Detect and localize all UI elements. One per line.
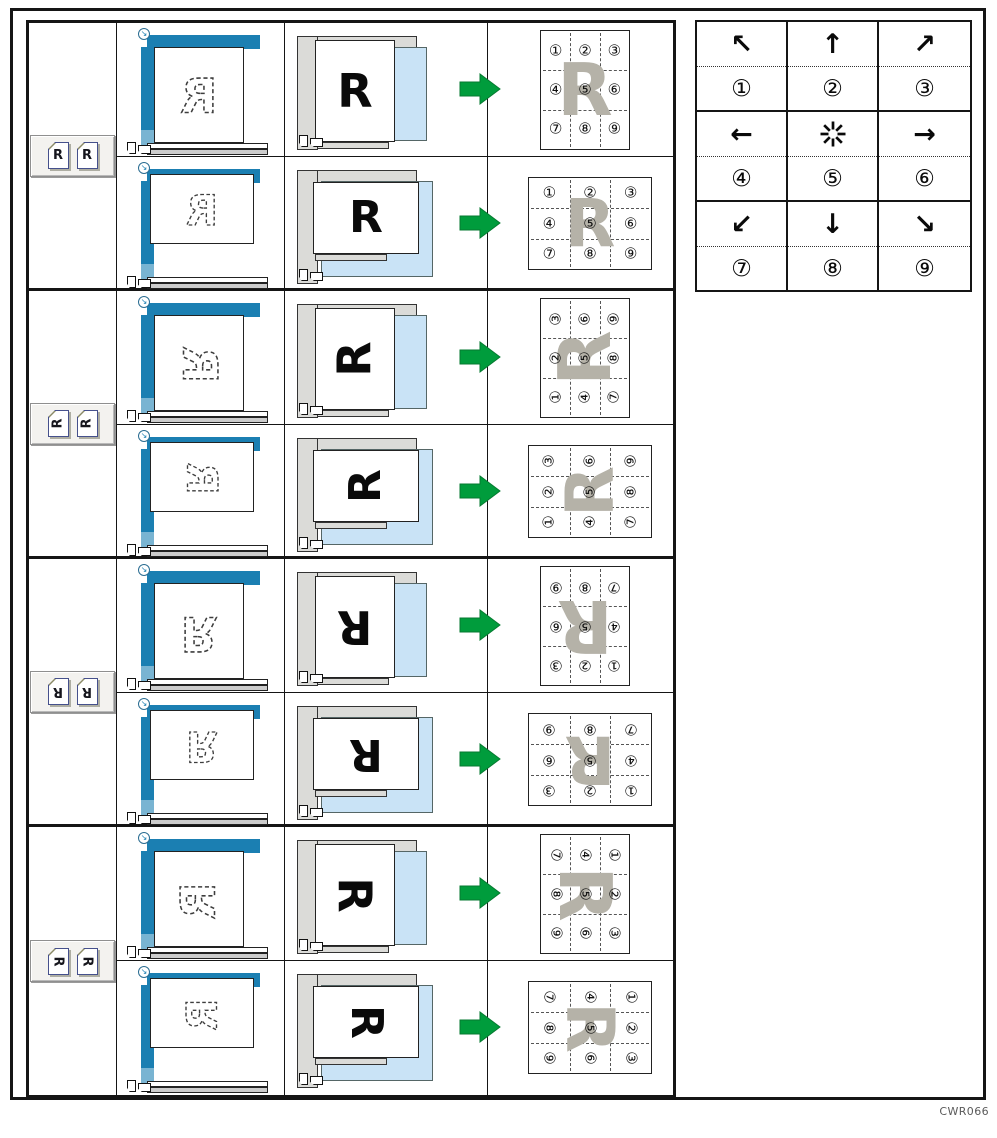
adf-original-page: R bbox=[315, 844, 395, 946]
stamp-position-number: ⑥ bbox=[549, 619, 562, 634]
platen-original-page: R bbox=[150, 710, 254, 780]
platen-illustration: ↘R bbox=[117, 291, 285, 425]
copy-output-page: R⑦④①⑧⑤②⑨⑥③ bbox=[540, 834, 630, 954]
legend-cell: ↙⑦ bbox=[697, 202, 788, 290]
dashed-mirrored-original-letter: R bbox=[167, 63, 231, 127]
adf-illustration: R bbox=[285, 291, 488, 425]
stamp-position-number: ④ bbox=[578, 848, 593, 861]
page-orientation-icons bbox=[127, 142, 151, 154]
page-orientation-icons bbox=[299, 403, 323, 415]
platen-illustration: ↘R bbox=[117, 425, 285, 559]
original-letter: R bbox=[349, 196, 383, 240]
original-letter: R bbox=[337, 604, 372, 650]
button-letter: R bbox=[82, 149, 92, 162]
legend-cell: ↓⑧ bbox=[788, 202, 879, 290]
legend-number: ⑥ bbox=[879, 157, 970, 200]
platen-original-page: R bbox=[154, 315, 244, 411]
adf-original-page: R bbox=[315, 576, 395, 678]
adf-illustration: R bbox=[285, 559, 488, 693]
stamp-position-number: ⑧ bbox=[583, 246, 596, 261]
stamp-position-number: ③ bbox=[549, 658, 562, 673]
stamp-position-number: ⑥ bbox=[624, 216, 637, 231]
stamp-position-number: ② bbox=[578, 43, 591, 58]
mini-portrait-page-icon bbox=[299, 135, 308, 147]
page-fold-corner bbox=[48, 410, 55, 417]
stamp-position-number: ④ bbox=[543, 216, 556, 231]
legend-number: ④ bbox=[697, 157, 786, 200]
scanner-edge-bar bbox=[147, 551, 268, 557]
button-page-icon: R bbox=[77, 948, 98, 975]
platen-illustration: ↘R bbox=[117, 23, 285, 157]
page-orientation-icons bbox=[299, 537, 323, 549]
adf-exit-bar bbox=[317, 142, 389, 149]
adf-exit-bar bbox=[315, 522, 387, 529]
mini-landscape-page-icon bbox=[138, 145, 151, 154]
scanner-edge-bar bbox=[147, 953, 268, 959]
orientation-button-original-rotated-180: RR bbox=[30, 671, 115, 713]
button-page-icon: R bbox=[77, 678, 98, 705]
copy-output-page: R⑨⑧⑦⑥⑤④③②① bbox=[528, 713, 652, 806]
page-orientation-icons bbox=[127, 276, 151, 288]
button-page-icon: R bbox=[48, 678, 69, 705]
mini-portrait-page-icon bbox=[299, 671, 308, 683]
copy-output-page: R①②③④⑤⑥⑦⑧⑨ bbox=[540, 30, 630, 150]
orientation-button-original-upright: RR bbox=[30, 135, 115, 177]
legend-arrow-right-icon: → bbox=[879, 112, 970, 157]
mini-portrait-page-icon bbox=[127, 946, 136, 958]
legend-arrow-left-icon: ← bbox=[697, 112, 786, 157]
copy-output-page: R③⑥⑨②⑤⑧①④⑦ bbox=[528, 445, 652, 538]
svg-text:R: R bbox=[181, 69, 218, 124]
mini-portrait-page-icon bbox=[127, 1080, 136, 1092]
copy-output-page: R③⑥⑨②⑤⑧①④⑦ bbox=[540, 298, 630, 418]
legend-cell: ↗③ bbox=[879, 22, 970, 112]
orientation-icon-cell: RR bbox=[29, 23, 117, 291]
legend-number: ① bbox=[697, 67, 786, 110]
mini-landscape-page-icon bbox=[310, 540, 323, 549]
copy-output-cell: R⑨⑧⑦⑥⑤④③②① bbox=[488, 559, 673, 693]
platen-original-page: R bbox=[154, 583, 244, 679]
svg-text:R: R bbox=[186, 186, 218, 235]
legend-arrow-down-icon: ↓ bbox=[788, 202, 877, 247]
orientation-icon-cell: RR bbox=[29, 559, 117, 827]
adf-illustration: R bbox=[285, 693, 488, 827]
stamp-position-number: ③ bbox=[624, 186, 637, 201]
mini-landscape-page-icon bbox=[310, 406, 323, 415]
page-orientation-icons bbox=[127, 410, 151, 422]
page-orientation-icons bbox=[127, 946, 151, 958]
legend-cell: ↑② bbox=[788, 22, 879, 112]
stamp-position-number: ⑧ bbox=[607, 351, 622, 364]
mini-landscape-page-icon bbox=[310, 942, 323, 951]
svg-text:R: R bbox=[172, 883, 227, 920]
stamp-position-number: ② bbox=[583, 186, 596, 201]
orientation-button-original-rotated-90-cw: RR bbox=[30, 940, 115, 982]
scanner-edge-bar bbox=[147, 149, 268, 155]
stamp-position-number: ① bbox=[549, 43, 562, 58]
mini-portrait-page-icon bbox=[127, 410, 136, 422]
corner-mark-icon: ↘ bbox=[138, 832, 150, 844]
platen-illustration: ↘R bbox=[117, 693, 285, 827]
page-orientation-icons bbox=[127, 812, 151, 824]
legend-arrow-up-icon: ↑ bbox=[788, 22, 877, 67]
corner-mark-icon: ↘ bbox=[138, 162, 150, 174]
stamp-position-number: ④ bbox=[549, 83, 562, 98]
legend-number: ⑨ bbox=[879, 247, 970, 290]
adf-exit-bar bbox=[315, 254, 387, 261]
copy-output-cell: R③⑥⑨②⑤⑧①④⑦ bbox=[488, 291, 673, 425]
stamp-position-number: ⑦ bbox=[607, 391, 622, 404]
original-letter: R bbox=[344, 1005, 388, 1039]
stamp-position-number: ⑤ bbox=[578, 83, 591, 98]
legend-cell: ⑤ bbox=[788, 112, 879, 202]
platen-original-page: R bbox=[154, 47, 244, 143]
copy-output-cell: R①②③④⑤⑥⑦⑧⑨ bbox=[488, 157, 673, 291]
legend-cell: ↖① bbox=[697, 22, 788, 112]
mini-portrait-page-icon bbox=[299, 805, 308, 817]
legend-arrow-up-right-icon: ↗ bbox=[879, 22, 970, 67]
mini-portrait-page-icon bbox=[127, 812, 136, 824]
stamp-position-number: ⑦ bbox=[549, 122, 562, 137]
adf-illustration: R bbox=[285, 961, 488, 1095]
copy-output-cell: R⑦④①⑧⑤②⑨⑥③ bbox=[488, 827, 673, 961]
mini-portrait-page-icon bbox=[299, 403, 308, 415]
stamp-position-number: ⑥ bbox=[578, 312, 593, 325]
stamp-position-number: ⑤ bbox=[578, 619, 591, 634]
stamp-position-number: ⑥ bbox=[583, 454, 598, 467]
copy-direction-arrow-icon bbox=[459, 340, 501, 374]
page-fold-corner bbox=[77, 948, 84, 955]
scanner-edge-bar bbox=[147, 819, 268, 825]
mini-landscape-page-icon bbox=[138, 413, 151, 422]
legend-number: ② bbox=[788, 67, 877, 110]
original-letter: R bbox=[332, 341, 378, 376]
stamp-position-number: ⑦ bbox=[548, 848, 563, 861]
stamp-position-number: ⑧ bbox=[578, 579, 591, 594]
stamp-position-number: ⑨ bbox=[543, 722, 556, 737]
mini-landscape-page-icon bbox=[138, 681, 151, 690]
adf-original-page: R bbox=[313, 986, 419, 1058]
scanner-edge-bar bbox=[147, 685, 268, 691]
mini-portrait-page-icon bbox=[299, 537, 308, 549]
adf-illustration: R bbox=[285, 23, 488, 157]
stamp-position-number: ③ bbox=[607, 927, 622, 940]
platen-original-page: R bbox=[150, 174, 254, 244]
mini-portrait-page-icon bbox=[299, 939, 308, 951]
copy-direction-arrow-icon bbox=[459, 876, 501, 910]
mini-portrait-page-icon bbox=[127, 142, 136, 154]
platen-illustration: ↘R bbox=[117, 961, 285, 1095]
adf-exit-bar bbox=[317, 410, 389, 417]
stamp-position-number: ② bbox=[548, 351, 563, 364]
mini-landscape-page-icon bbox=[310, 138, 323, 147]
mini-landscape-page-icon bbox=[310, 674, 323, 683]
platen-illustration: ↘R bbox=[117, 559, 285, 693]
page-orientation-icons bbox=[127, 678, 151, 690]
corner-mark-icon: ↘ bbox=[138, 698, 150, 710]
mini-landscape-page-icon bbox=[310, 272, 323, 281]
stamp-position-number: ② bbox=[542, 485, 557, 498]
mini-portrait-page-icon bbox=[299, 1073, 308, 1085]
corner-mark-icon: ↘ bbox=[138, 430, 150, 442]
legend-arrow-down-left-icon: ↙ bbox=[697, 202, 786, 247]
platen-original-page: R bbox=[154, 851, 244, 947]
page-fold-corner bbox=[48, 948, 55, 955]
copy-output-cell: R⑨⑧⑦⑥⑤④③②① bbox=[488, 693, 673, 827]
mini-landscape-page-icon bbox=[138, 815, 151, 824]
mini-landscape-page-icon bbox=[138, 279, 151, 288]
stamp-position-number: ④ bbox=[624, 752, 637, 767]
dashed-mirrored-original-letter: R bbox=[174, 449, 230, 505]
adf-original-page: R bbox=[313, 718, 419, 790]
platen-illustration: ↘R bbox=[117, 827, 285, 961]
stamp-position-number: ⑨ bbox=[624, 246, 637, 261]
orientation-table: RR↘RRR①②③④⑤⑥⑦⑧⑨↘RRR①②③④⑤⑥⑦⑧⑨RR↘RRR③⑥⑨②⑤⑧… bbox=[26, 20, 676, 1098]
stamp-position-number: ① bbox=[543, 186, 556, 201]
copy-output-page: R①②③④⑤⑥⑦⑧⑨ bbox=[528, 177, 652, 270]
stamp-position-number: ④ bbox=[583, 990, 598, 1003]
original-letter: R bbox=[344, 469, 388, 503]
stamp-position-number: ⑤ bbox=[578, 887, 593, 900]
legend-center-star-icon bbox=[788, 112, 877, 157]
stamp-position-number: ② bbox=[578, 658, 591, 673]
stamp-position-number: ⑥ bbox=[608, 83, 621, 98]
dashed-mirrored-original-letter: R bbox=[174, 717, 230, 773]
adf-illustration: R bbox=[285, 827, 488, 961]
platen-illustration: ↘R bbox=[117, 157, 285, 291]
button-letter: R bbox=[51, 418, 64, 428]
page-orientation-icons bbox=[127, 544, 151, 556]
button-page-icon: R bbox=[48, 142, 69, 169]
platen-original-page: R bbox=[150, 442, 254, 512]
legend-cell: ↘⑨ bbox=[879, 202, 970, 290]
dashed-mirrored-original-letter: R bbox=[174, 181, 230, 237]
mini-landscape-page-icon bbox=[310, 808, 323, 817]
legend-number: ⑤ bbox=[788, 157, 877, 200]
page-orientation-icons bbox=[299, 805, 323, 817]
dashed-mirrored-original-letter: R bbox=[167, 331, 231, 395]
svg-text:R: R bbox=[178, 999, 227, 1031]
stamp-position-number: ① bbox=[608, 658, 621, 673]
mini-portrait-page-icon bbox=[299, 269, 308, 281]
mini-portrait-page-icon bbox=[127, 276, 136, 288]
button-letter: R bbox=[53, 685, 63, 698]
adf-exit-bar bbox=[315, 1058, 387, 1065]
original-letter: R bbox=[332, 877, 378, 912]
mini-landscape-page-icon bbox=[138, 949, 151, 958]
adf-original-page: R bbox=[315, 40, 395, 142]
stamp-position-number: ⑤ bbox=[583, 485, 598, 498]
platen-original-page: R bbox=[150, 978, 254, 1048]
stamp-position-number: ⑨ bbox=[623, 454, 638, 467]
stamp-position-number: ① bbox=[624, 782, 637, 797]
stamp-position-number: ② bbox=[607, 887, 622, 900]
button-letter: R bbox=[80, 956, 93, 966]
stamp-position-number: ⑦ bbox=[623, 515, 638, 528]
legend-number: ⑧ bbox=[788, 247, 877, 290]
scanner-edge-bar bbox=[147, 1087, 268, 1093]
copy-direction-arrow-icon bbox=[459, 608, 501, 642]
scanner-edge-bar bbox=[147, 283, 268, 289]
stamp-position-number: ⑨ bbox=[549, 579, 562, 594]
mini-landscape-page-icon bbox=[310, 1076, 323, 1085]
stamp-position-number: ⑦ bbox=[624, 722, 637, 737]
copy-output-cell: R⑦④①⑧⑤②⑨⑥③ bbox=[488, 961, 673, 1095]
page-orientation-icons bbox=[127, 1080, 151, 1092]
orientation-icon-cell: RR bbox=[29, 827, 117, 1095]
copy-direction-arrow-icon bbox=[459, 206, 501, 240]
copy-direction-arrow-icon bbox=[459, 474, 501, 508]
copy-direction-arrow-icon bbox=[459, 1010, 501, 1044]
adf-original-page: R bbox=[315, 308, 395, 410]
stamp-position-number: ③ bbox=[623, 1051, 638, 1064]
stamp-position-number: ⑦ bbox=[608, 579, 621, 594]
figure-code: CWR066 bbox=[939, 1105, 989, 1118]
legend-cell: ←④ bbox=[697, 112, 788, 202]
svg-text:R: R bbox=[186, 722, 218, 771]
dashed-mirrored-original-letter: R bbox=[167, 599, 231, 663]
page-orientation-icons bbox=[299, 671, 323, 683]
mini-landscape-page-icon bbox=[138, 547, 151, 556]
scanner-edge-bar bbox=[147, 417, 268, 423]
stamp-position-number: ⑥ bbox=[578, 927, 593, 940]
legend-number: ⑦ bbox=[697, 247, 786, 290]
page-orientation-icons bbox=[299, 939, 323, 951]
legend-arrow-up-left-icon: ↖ bbox=[697, 22, 786, 67]
button-page-icon: R bbox=[77, 142, 98, 169]
stamp-position-number: ⑧ bbox=[623, 485, 638, 498]
stamp-position-number: ④ bbox=[608, 619, 621, 634]
mini-landscape-page-icon bbox=[138, 1083, 151, 1092]
stamp-position-number: ⑨ bbox=[607, 312, 622, 325]
stamp-position-number: ⑧ bbox=[548, 887, 563, 900]
stamp-position-number: ① bbox=[548, 391, 563, 404]
copy-direction-arrow-icon bbox=[459, 72, 501, 106]
copy-output-page: R⑨⑧⑦⑥⑤④③②① bbox=[540, 566, 630, 686]
legend-number: ③ bbox=[879, 67, 970, 110]
copy-direction-arrow-icon bbox=[459, 742, 501, 776]
button-letter: R bbox=[80, 418, 93, 428]
stamp-position-number: ② bbox=[583, 782, 596, 797]
button-page-icon: R bbox=[77, 410, 98, 437]
button-page-icon: R bbox=[48, 948, 69, 975]
stamp-position-number: ⑨ bbox=[542, 1051, 557, 1064]
mini-portrait-page-icon bbox=[127, 544, 136, 556]
stamp-position-number: ① bbox=[607, 848, 622, 861]
button-letter: R bbox=[51, 956, 64, 966]
stamp-position-number: ③ bbox=[543, 782, 556, 797]
stamp-position-number: ① bbox=[623, 990, 638, 1003]
stamp-position-number: ⑧ bbox=[578, 122, 591, 137]
adf-illustration: R bbox=[285, 157, 488, 291]
adf-exit-bar bbox=[315, 790, 387, 797]
stamp-position-number: ③ bbox=[548, 312, 563, 325]
stamp-position-number: ⑧ bbox=[583, 722, 596, 737]
stamp-position-number: ⑤ bbox=[583, 752, 596, 767]
copy-output-cell: R①②③④⑤⑥⑦⑧⑨ bbox=[488, 23, 673, 157]
adf-original-page: R bbox=[313, 182, 419, 254]
stamp-position-legend: ↖①↑②↗③←④⑤→⑥↙⑦↓⑧↘⑨ bbox=[695, 20, 972, 292]
stamp-position-number: ① bbox=[542, 515, 557, 528]
stamp-position-number: ⑥ bbox=[543, 752, 556, 767]
page-orientation-icons bbox=[299, 1073, 323, 1085]
stamp-position-number: ⑨ bbox=[548, 927, 563, 940]
copy-output-cell: R③⑥⑨②⑤⑧①④⑦ bbox=[488, 425, 673, 559]
mini-portrait-page-icon bbox=[127, 678, 136, 690]
corner-mark-icon: ↘ bbox=[138, 564, 150, 576]
stamp-position-number: ⑦ bbox=[542, 990, 557, 1003]
stamp-position-number: ② bbox=[623, 1021, 638, 1034]
stamp-position-number: ⑥ bbox=[583, 1051, 598, 1064]
corner-mark-icon: ↘ bbox=[138, 296, 150, 308]
orientation-button-original-rotated-90-ccw: RR bbox=[30, 403, 115, 445]
adf-illustration: R bbox=[285, 425, 488, 559]
dashed-mirrored-original-letter: R bbox=[167, 867, 231, 931]
legend-cell: →⑥ bbox=[879, 112, 970, 202]
stamp-position-number: ⑤ bbox=[583, 216, 596, 231]
legend-arrow-down-right-icon: ↘ bbox=[879, 202, 970, 247]
stamp-position-number: ④ bbox=[578, 391, 593, 404]
svg-text:R: R bbox=[178, 463, 227, 495]
stamp-position-number: ⑤ bbox=[578, 351, 593, 364]
adf-exit-bar bbox=[317, 946, 389, 953]
stamp-position-number: ⑦ bbox=[543, 246, 556, 261]
page-fold-corner bbox=[77, 410, 84, 417]
original-letter: R bbox=[349, 732, 383, 776]
button-letter: R bbox=[53, 149, 63, 162]
corner-mark-icon: ↘ bbox=[138, 28, 150, 40]
button-page-icon: R bbox=[48, 410, 69, 437]
corner-mark-icon: ↘ bbox=[138, 966, 150, 978]
stamp-position-number: ⑧ bbox=[542, 1021, 557, 1034]
svg-text:R: R bbox=[172, 347, 227, 384]
adf-exit-bar bbox=[317, 678, 389, 685]
stamp-position-number: ④ bbox=[583, 515, 598, 528]
button-letter: R bbox=[82, 685, 92, 698]
figure-frame: RR↘RRR①②③④⑤⑥⑦⑧⑨↘RRR①②③④⑤⑥⑦⑧⑨RR↘RRR③⑥⑨②⑤⑧… bbox=[10, 8, 986, 1100]
stamp-position-number: ③ bbox=[608, 43, 621, 58]
original-letter: R bbox=[337, 68, 372, 114]
page-orientation-icons bbox=[299, 269, 323, 281]
stamp-position-number: ⑤ bbox=[583, 1021, 598, 1034]
dashed-mirrored-original-letter: R bbox=[174, 985, 230, 1041]
orientation-icon-cell: RR bbox=[29, 291, 117, 559]
page-orientation-icons bbox=[299, 135, 323, 147]
stamp-position-number: ⑨ bbox=[608, 122, 621, 137]
stamp-position-number: ③ bbox=[542, 454, 557, 467]
copy-output-page: R⑦④①⑧⑤②⑨⑥③ bbox=[528, 981, 652, 1074]
adf-original-page: R bbox=[313, 450, 419, 522]
svg-text:R: R bbox=[181, 605, 218, 660]
